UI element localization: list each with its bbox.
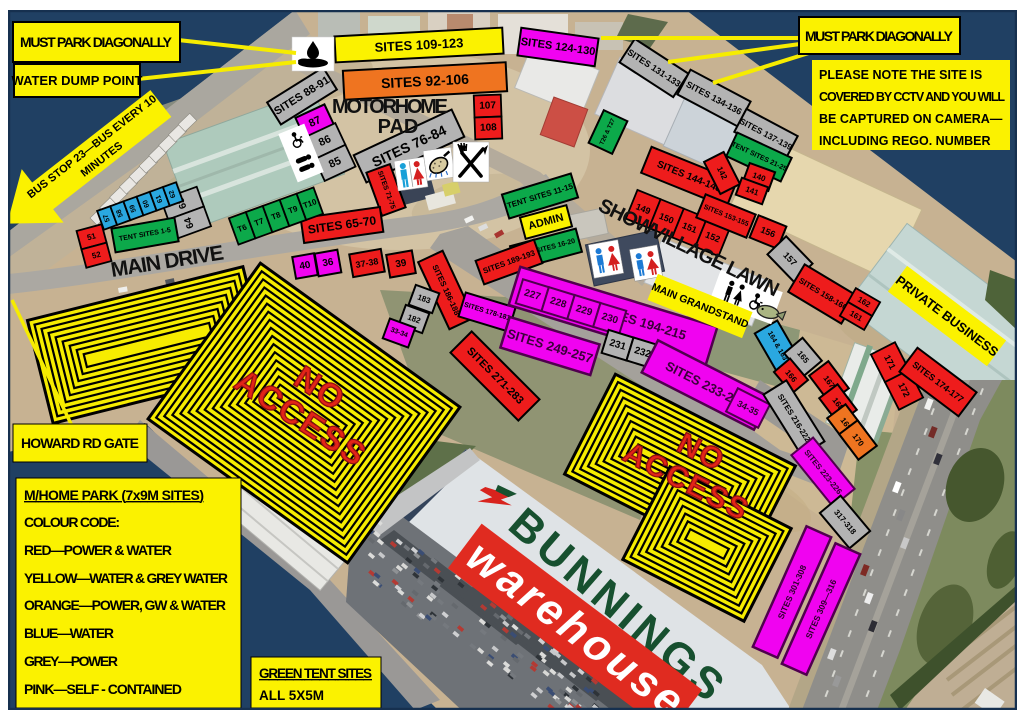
svg-text:M/HOME PARK (7x9M SITES): M/HOME PARK (7x9M SITES) [24, 487, 204, 503]
svg-text:PINK—SELF - CONTAINED: PINK—SELF - CONTAINED [24, 681, 182, 697]
svg-text:PLEASE NOTE THE SITE IS: PLEASE NOTE THE SITE IS [819, 68, 982, 82]
svg-text:COLOUR CODE:: COLOUR CODE: [24, 514, 120, 530]
svg-text:MUST PARK DIAGONALLY: MUST PARK DIAGONALLY [20, 34, 173, 50]
svg-text:107: 107 [479, 100, 496, 112]
svg-text:RED—POWER & WATER: RED—POWER & WATER [24, 542, 172, 558]
svg-text:GREEN TENT SITES: GREEN TENT SITES [259, 666, 372, 681]
svg-text:108: 108 [480, 122, 497, 134]
svg-text:WATER DUMP POINT: WATER DUMP POINT [12, 73, 143, 88]
svg-text:ALL 5X5M: ALL 5X5M [259, 688, 324, 703]
svg-text:MUST PARK DIAGONALLY: MUST PARK DIAGONALLY [805, 28, 954, 44]
svg-text:BE CAPTURED ON CAMERA—: BE CAPTURED ON CAMERA— [819, 112, 1003, 126]
svg-text:ORANGE—POWER, GW & WATER: ORANGE—POWER, GW & WATER [24, 597, 226, 613]
svg-text:MOTORHOME: MOTORHOME [332, 96, 448, 118]
svg-text:PAD: PAD [378, 116, 419, 138]
svg-text:COVERED BY CCTV AND YOU WILL: COVERED BY CCTV AND YOU WILL [819, 90, 1005, 104]
svg-text:YELLOW—WATER & GREY WATER: YELLOW—WATER & GREY WATER [24, 570, 228, 586]
svg-text:HOWARD RD GATE: HOWARD RD GATE [21, 435, 139, 451]
svg-text:BLUE—WATER: BLUE—WATER [24, 625, 114, 641]
svg-text:INCLUDING REGO. NUMBER: INCLUDING REGO. NUMBER [819, 134, 991, 148]
svg-text:GREY—POWER: GREY—POWER [24, 653, 118, 669]
